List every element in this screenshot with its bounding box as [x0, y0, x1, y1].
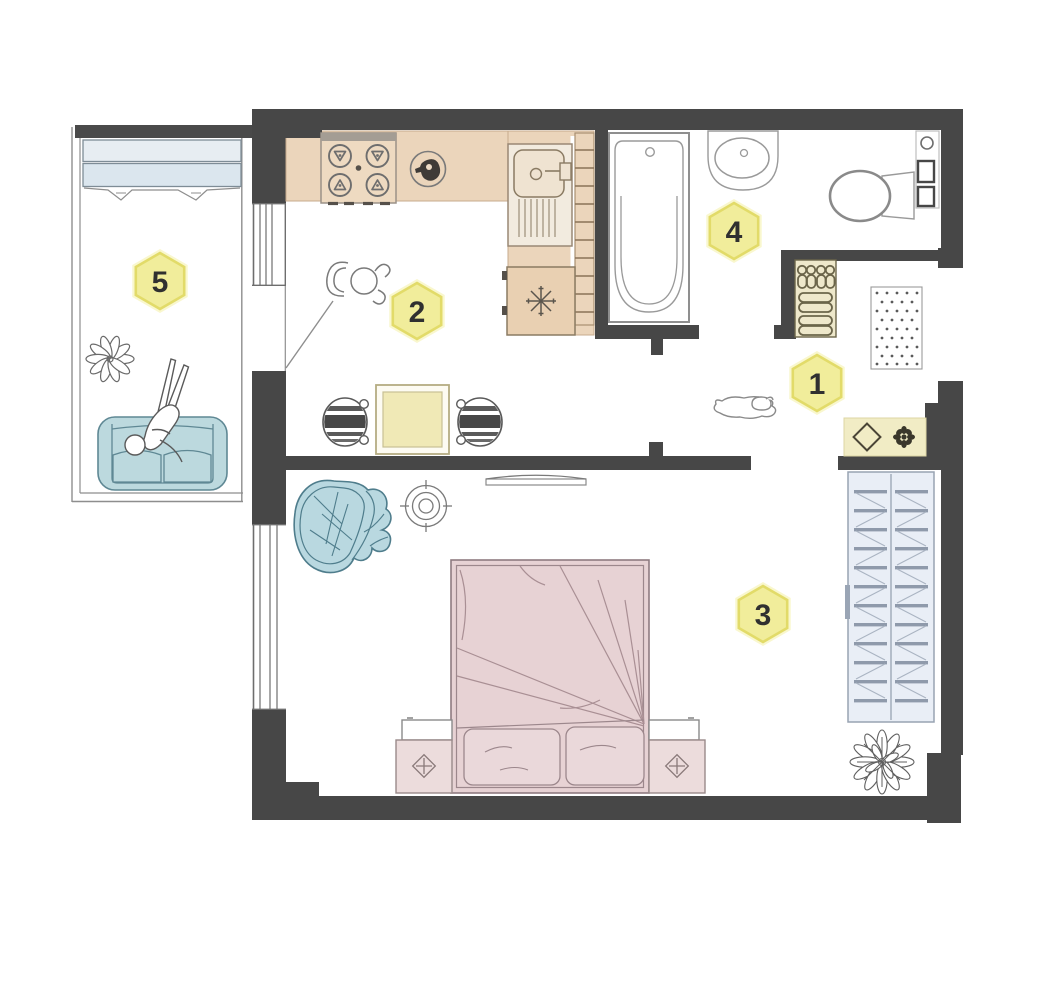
- svg-text:5: 5: [152, 266, 169, 299]
- svg-text:2: 2: [409, 296, 426, 329]
- svg-text:1: 1: [809, 368, 826, 401]
- svg-text:3: 3: [755, 599, 772, 632]
- svg-text:4: 4: [726, 216, 743, 249]
